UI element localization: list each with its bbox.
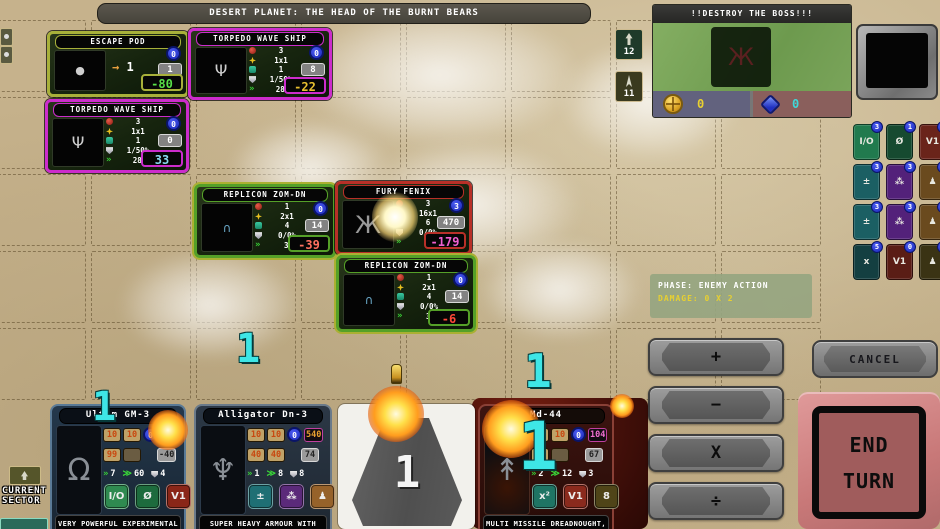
count-badge: 0	[904, 241, 916, 253]
ability-tile[interactable]: V10	[919, 124, 940, 160]
sector-tile-secondary[interactable]	[0, 518, 48, 529]
weapon-tile[interactable]: ⁂	[279, 484, 304, 509]
stat-row-2: 40 40 74	[247, 448, 319, 462]
shield-icon	[290, 471, 297, 478]
evade-icon: ≫	[123, 471, 132, 478]
score-box: -179	[424, 232, 466, 249]
ability-tile[interactable]: ♟1	[919, 244, 940, 280]
counter-tile-allies: 11	[615, 71, 643, 102]
end-turn-button[interactable]: END TURN	[798, 392, 940, 529]
card-description: SUPER HEAVY ARMOUR WITH GATLING CANNONS.…	[199, 515, 327, 529]
explosion-effect	[368, 386, 424, 442]
weapon-tile[interactable]: x²	[532, 484, 557, 509]
shield-badge: 0	[287, 427, 302, 442]
sector-tile[interactable]	[9, 466, 41, 485]
gem-value: 0	[792, 97, 799, 111]
ability-tile[interactable]: I/O3	[853, 124, 880, 160]
shield-badge: 0	[166, 46, 181, 61]
grid-cell	[91, 174, 191, 246]
ship-sprite: ♆	[200, 425, 246, 515]
missile-icon	[391, 364, 402, 384]
ability-hand: I/O3 Ø1 V10 ±3 ⁂3 ♟1 ±3 ⁂3 ♟1 x5 V10 ♟1	[853, 124, 940, 280]
quest-panel: !!DESTROY THE BOSS!!! Ж 0 0	[652, 4, 852, 118]
gem-icon	[760, 93, 781, 114]
count-badge: 3	[871, 201, 883, 213]
ship-sprite: Ψ	[195, 47, 247, 94]
speed-icon: »	[247, 471, 252, 478]
divide-label: ÷	[662, 487, 770, 515]
ability-tile[interactable]: ±3	[853, 164, 880, 200]
weapon-tile[interactable]: I/O	[104, 484, 129, 509]
card-title: TORPEDO WAVE SHIP	[53, 103, 181, 117]
card-title: REPLICON ZOM-DN	[202, 188, 328, 202]
ship-icon	[624, 75, 634, 87]
stat-row-1: 10 10 0 540	[247, 427, 323, 442]
ship-sprite: ∩	[201, 203, 253, 252]
weapon-tile[interactable]: ±	[248, 484, 273, 509]
weapon-tile[interactable]: ♟	[310, 484, 335, 509]
shield-badge: 0	[313, 201, 328, 216]
score-box: 33	[141, 150, 183, 167]
current-sector-label: CURRENT SECTOR	[2, 486, 47, 506]
speed-icon: »	[249, 86, 254, 93]
shield-icon	[249, 76, 256, 83]
card-title: TORPEDO WAVE SHIP	[196, 32, 324, 46]
hull-icon	[397, 293, 404, 300]
enemy-card-replicon-zom-dn-1[interactable]: REPLICON ZOM-DN ∩ 1 2x1 4 0/0% »3 0 14 -…	[194, 184, 336, 258]
move-indicator: → 1	[112, 60, 134, 74]
count-badge: 5	[871, 241, 883, 253]
coin-icon	[663, 94, 683, 114]
card-title: ESCAPE POD	[55, 35, 181, 49]
attack-icon	[249, 47, 256, 54]
coin-resource: 0	[653, 91, 750, 117]
evade-icon: ≫	[267, 471, 276, 478]
ship-sprite: Ω	[56, 425, 102, 515]
ship-sprite: Ψ	[52, 118, 104, 167]
quest-field: Ж	[653, 23, 851, 91]
cancel-button[interactable]: CANCEL	[812, 340, 938, 378]
quest-title: !!DESTROY THE BOSS!!!	[653, 5, 851, 23]
boss-sprite: Ж	[711, 27, 771, 87]
card-description: MULTI MISSILE DREADNOUGHT, WITH MINIGUN,…	[483, 515, 609, 529]
minus-button[interactable]: −	[648, 386, 784, 424]
hull-icon	[249, 66, 256, 73]
hits-box: 14	[305, 219, 329, 232]
plus-label: +	[662, 343, 770, 371]
weapon-tile[interactable]: 8	[594, 484, 619, 509]
grid-cell	[0, 328, 86, 400]
gem-resource: 0	[753, 91, 851, 117]
attack-icon	[255, 203, 262, 210]
guns-icon	[249, 57, 256, 64]
hits-box: 14	[445, 290, 469, 303]
ability-tile[interactable]: ♟1	[919, 164, 940, 200]
hits-box: 8	[301, 63, 325, 76]
count-badge: 3	[871, 121, 883, 133]
minus-label: −	[662, 391, 770, 419]
smoke-cloud	[120, 250, 300, 360]
multiply-button[interactable]: X	[648, 434, 784, 472]
guns-icon	[106, 128, 113, 135]
count-badge: 3	[904, 161, 916, 173]
target-marker: 1	[92, 384, 116, 430]
empty-slot	[123, 448, 141, 462]
score-box: -39	[288, 235, 330, 252]
ability-tile[interactable]: ♟1	[919, 204, 940, 240]
shield-badge: 3	[449, 198, 464, 213]
explosion-effect	[372, 192, 418, 242]
phase-panel: PHASE: ENEMY ACTION DAMAGE: 0 X 2	[650, 274, 812, 318]
grid-cell	[0, 251, 86, 323]
explosion-effect	[610, 394, 634, 418]
ability-tile[interactable]: x5	[853, 244, 880, 280]
weapon-tiles: ± ⁂ ♟	[248, 484, 335, 509]
count-badge: 1	[904, 121, 916, 133]
hull-icon	[106, 137, 113, 144]
shield-icon	[106, 147, 113, 154]
shield-badge: 0	[166, 116, 181, 131]
speed-icon: »	[103, 471, 108, 478]
grid-cell	[721, 174, 821, 246]
screen	[866, 33, 928, 88]
speed-icon: »	[397, 313, 402, 320]
ship-sprite: ∩	[343, 274, 395, 326]
ability-tile[interactable]: Ø1	[886, 124, 913, 160]
hits-box: 0	[158, 134, 182, 147]
enemy-card-torpedo-wave-ship-2[interactable]: TORPEDO WAVE SHIP Ψ 3 1x1 1 1/50% »28 0 …	[45, 99, 189, 173]
attack-icon	[397, 274, 404, 281]
ability-tile[interactable]: ±3	[853, 204, 880, 240]
unit-icon	[624, 33, 634, 45]
weapon-tiles: I/O Ø V1	[104, 484, 191, 509]
grid-cell	[406, 328, 506, 400]
divide-button[interactable]: ÷	[648, 482, 784, 520]
hull-icon	[255, 222, 262, 229]
ability-tile[interactable]: V10	[886, 244, 913, 280]
card-description: VERY POWERFUL EXPERIMENTAL HUMAN SHIP FA…	[55, 515, 181, 529]
score-box: -80	[141, 74, 183, 91]
target-marker: 1	[518, 408, 558, 485]
weapon-tile[interactable]: Ø	[135, 484, 160, 509]
score-box: -22	[284, 77, 326, 94]
guns-icon	[255, 213, 262, 220]
stat-row-3: »1 ≫8 8	[247, 469, 304, 479]
game-screen: DESERT PLANET: THE HEAD OF THE BURNT BEA…	[0, 0, 940, 529]
multiply-label: X	[662, 439, 770, 467]
card-title: Alligator Dn-3	[203, 408, 323, 424]
shield-badge: 0	[309, 45, 324, 60]
counter-tile-enemies: 12	[615, 29, 643, 60]
count-badge: 3	[904, 201, 916, 213]
shield-icon	[397, 303, 404, 310]
weapon-tile[interactable]: V1	[563, 484, 588, 509]
weapon-tile[interactable]: V1	[166, 484, 191, 509]
end-turn-label: END TURN	[812, 406, 926, 519]
guns-icon	[397, 284, 404, 291]
enemy-card-escape-pod[interactable]: ESCAPE POD ● → 1 0 1 -80	[47, 31, 189, 97]
ship-sprite: ●	[54, 50, 106, 91]
enemy-card-torpedo-wave-ship-1[interactable]: TORPEDO WAVE SHIP Ψ 3 1x1 1 1/50% »28 0 …	[188, 28, 332, 100]
shield-icon	[151, 471, 158, 478]
edge-tile	[0, 28, 13, 46]
move-arrow-icon: →	[112, 60, 119, 74]
target-marker: 1	[524, 344, 552, 398]
explosion-effect	[148, 410, 188, 450]
location-title-bar: DESERT PLANET: THE HEAD OF THE BURNT BEA…	[97, 3, 591, 24]
ability-tile[interactable]: ⁂3	[886, 164, 913, 200]
shield-badge: 0	[453, 272, 468, 287]
player-card-alligator-dn3[interactable]: Alligator Dn-3 ♆ 10 10 0 540 40 40 74 »1…	[194, 404, 332, 529]
grid-cell	[616, 174, 716, 246]
grid-cell	[0, 174, 86, 246]
coin-value: 0	[697, 97, 704, 111]
hits-box: 470	[437, 216, 465, 229]
tower-value: 1	[394, 447, 421, 498]
shield-icon	[255, 232, 262, 239]
speed-icon: »	[106, 157, 111, 164]
smoke-cloud	[480, 240, 640, 340]
phase-label: PHASE: ENEMY ACTION	[658, 281, 804, 290]
damage-label: DAMAGE: 0 X 2	[658, 294, 804, 303]
card-title: REPLICON ZOM-DN	[344, 259, 468, 273]
speed-icon: »	[255, 242, 260, 249]
score-box: -6	[428, 309, 470, 326]
count-badge: 3	[871, 161, 883, 173]
display-screen[interactable]	[856, 24, 938, 100]
enemy-card-replicon-zom-dn-2[interactable]: REPLICON ZOM-DN ∩ 1 2x1 4 0/0% »3 0 14 -…	[336, 255, 476, 332]
plus-button[interactable]: +	[648, 338, 784, 376]
weapon-tiles: x² V1 8	[532, 484, 619, 509]
stat-row-2: 99 -40	[103, 448, 176, 462]
attack-icon	[106, 118, 113, 125]
cancel-label: CANCEL	[824, 346, 926, 372]
target-marker: 1	[236, 326, 260, 372]
edge-tile	[0, 46, 13, 64]
shield-icon	[579, 471, 586, 478]
ability-tile[interactable]: ⁂3	[886, 204, 913, 240]
stat-row-3: »7 ≫60 4	[103, 469, 165, 479]
shield-badge: 0	[571, 427, 586, 442]
